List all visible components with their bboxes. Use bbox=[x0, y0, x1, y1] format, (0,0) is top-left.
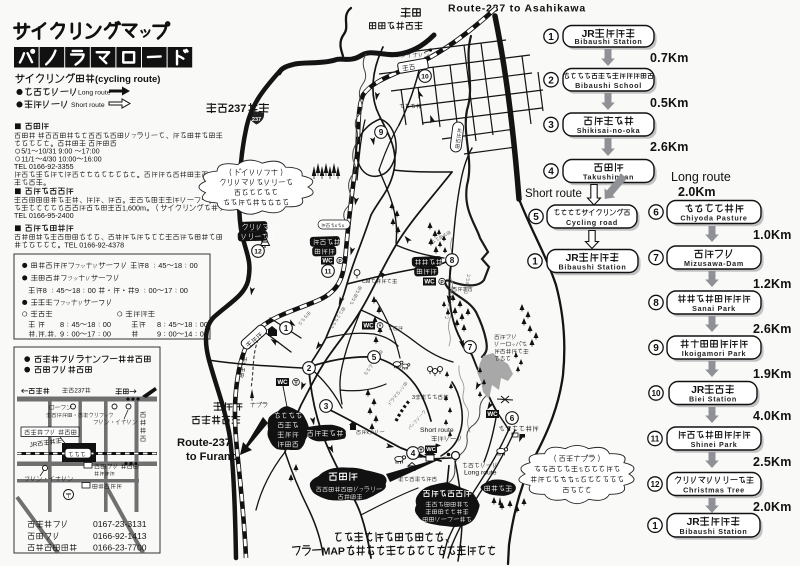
svg-text:1: 1 bbox=[532, 257, 538, 268]
svg-text:8: 8 bbox=[653, 298, 659, 309]
svg-text:Long route: Long route bbox=[464, 470, 497, 477]
svg-text:.: . bbox=[35, 330, 37, 339]
svg-text:5: 5 bbox=[533, 212, 539, 223]
svg-text:Short route: Short route bbox=[525, 188, 582, 200]
svg-text:WC: WC bbox=[487, 411, 498, 418]
svg-text:1: 1 bbox=[548, 32, 554, 43]
svg-text:45: 45 bbox=[56, 286, 64, 295]
svg-text:00: 00 bbox=[103, 330, 111, 339]
svg-text:7: 7 bbox=[653, 253, 659, 264]
svg-text:3: 3 bbox=[412, 395, 415, 401]
svg-text:Short route: Short route bbox=[420, 427, 454, 434]
svg-text:9: 9 bbox=[135, 286, 139, 295]
svg-text:9: 9 bbox=[379, 128, 384, 137]
svg-text:Bibaushi Station: Bibaushi Station bbox=[680, 527, 748, 536]
svg-text:0166-92-1413: 0166-92-1413 bbox=[93, 531, 147, 541]
svg-text:WC: WC bbox=[424, 279, 435, 286]
svg-text:1: 1 bbox=[652, 521, 658, 532]
svg-text:237: 237 bbox=[74, 388, 85, 395]
svg-text:00: 00 bbox=[72, 330, 80, 339]
svg-text:0.5Km: 0.5Km bbox=[650, 96, 689, 110]
svg-text:237: 237 bbox=[252, 117, 261, 123]
svg-text:18: 18 bbox=[87, 320, 95, 329]
svg-text:Shikisai-no-oka: Shikisai-no-oka bbox=[577, 126, 641, 135]
svg-text:11: 11 bbox=[651, 435, 660, 444]
svg-text:18: 18 bbox=[72, 286, 80, 295]
svg-text:4: 4 bbox=[411, 449, 416, 458]
svg-text:Bibaushi Station: Bibaushi Station bbox=[559, 263, 627, 272]
svg-text:2.6Km: 2.6Km bbox=[753, 322, 792, 336]
svg-text:Route-237 to Asahikawa: Route-237 to Asahikawa bbox=[448, 3, 586, 15]
svg-text:237: 237 bbox=[228, 103, 246, 115]
svg-text:TEL 0166-92-4378: TEL 0166-92-4378 bbox=[64, 240, 124, 249]
svg-text:00: 00 bbox=[88, 286, 96, 295]
svg-text:14: 14 bbox=[184, 330, 192, 339]
svg-text:Shinei Park: Shinei Park bbox=[691, 440, 738, 449]
svg-text:Long route: Long route bbox=[671, 170, 731, 184]
svg-text:WC: WC bbox=[277, 379, 288, 386]
svg-text:16:00: 16:00 bbox=[84, 154, 102, 163]
svg-text:0166-23-7700: 0166-23-7700 bbox=[93, 543, 147, 553]
svg-text:12: 12 bbox=[254, 248, 262, 255]
svg-text:6: 6 bbox=[653, 208, 659, 219]
svg-text:Mizusawa-Dam: Mizusawa-Dam bbox=[684, 259, 744, 268]
svg-text:Bibaushi Station: Bibaushi Station bbox=[575, 37, 643, 46]
svg-text:00: 00 bbox=[103, 320, 111, 329]
svg-text:CM: CM bbox=[362, 279, 371, 285]
svg-text:8: 8 bbox=[43, 286, 47, 295]
svg-text:TEL 0166-95-2400: TEL 0166-95-2400 bbox=[14, 211, 74, 220]
svg-text:8: 8 bbox=[157, 320, 161, 329]
svg-text:2.0Km: 2.0Km bbox=[678, 185, 716, 199]
svg-text:2.0Km: 2.0Km bbox=[753, 500, 792, 514]
svg-text:JR: JR bbox=[29, 441, 38, 449]
svg-text:9: 9 bbox=[60, 330, 64, 339]
svg-text:17: 17 bbox=[87, 330, 95, 339]
svg-text:45: 45 bbox=[72, 320, 80, 329]
svg-text:00: 00 bbox=[169, 330, 177, 339]
svg-text:12: 12 bbox=[650, 480, 660, 489]
svg-text:2: 2 bbox=[548, 75, 554, 86]
svg-text:Cycling road: Cycling road bbox=[566, 218, 618, 227]
svg-text:WC: WC bbox=[363, 323, 374, 330]
svg-text:00: 00 bbox=[149, 286, 157, 295]
svg-text:WC: WC bbox=[322, 258, 333, 265]
svg-text:MAP: MAP bbox=[322, 546, 345, 558]
svg-text:1.2Km: 1.2Km bbox=[753, 277, 792, 291]
svg-text:45: 45 bbox=[169, 320, 177, 329]
svg-text:8: 8 bbox=[145, 261, 149, 270]
svg-text:9: 9 bbox=[157, 330, 161, 339]
svg-text:9: 9 bbox=[653, 343, 659, 354]
svg-text:0.7Km: 0.7Km bbox=[650, 51, 689, 65]
svg-text:8: 8 bbox=[60, 320, 64, 329]
svg-text:10: 10 bbox=[651, 389, 661, 398]
svg-text:1.0Km: 1.0Km bbox=[753, 228, 792, 242]
svg-text:TEL 0166-92-3355: TEL 0166-92-3355 bbox=[14, 162, 74, 171]
svg-text:3: 3 bbox=[548, 120, 554, 131]
svg-text:WC: WC bbox=[426, 447, 437, 453]
svg-text:6: 6 bbox=[510, 414, 515, 423]
svg-text:18: 18 bbox=[184, 320, 192, 329]
svg-text:4: 4 bbox=[548, 167, 554, 178]
svg-text:8: 8 bbox=[450, 256, 455, 265]
svg-text:0167-23-3131: 0167-23-3131 bbox=[93, 519, 147, 529]
svg-text:3: 3 bbox=[324, 402, 329, 411]
svg-text:45: 45 bbox=[158, 261, 166, 270]
svg-text:2.6Km: 2.6Km bbox=[650, 140, 689, 154]
svg-text:00: 00 bbox=[190, 261, 198, 270]
svg-text:.: . bbox=[45, 330, 47, 339]
svg-text:00: 00 bbox=[180, 286, 188, 295]
svg-text:Chiyoda Pasture: Chiyoda Pasture bbox=[680, 214, 747, 223]
svg-text:Christmas Tree: Christmas Tree bbox=[683, 486, 745, 495]
svg-text:2.5Km: 2.5Km bbox=[753, 455, 792, 469]
svg-text:18: 18 bbox=[174, 261, 182, 270]
svg-text:Route-237: Route-237 bbox=[177, 437, 231, 449]
svg-text:5: 5 bbox=[372, 353, 377, 362]
svg-text:Short route: Short route bbox=[71, 102, 105, 109]
svg-text:Biei Station: Biei Station bbox=[689, 395, 737, 404]
svg-text:17: 17 bbox=[164, 286, 172, 295]
svg-text:10: 10 bbox=[421, 73, 429, 80]
svg-text:Takushinkan: Takushinkan bbox=[583, 173, 634, 182]
svg-text:Bibaushi School: Bibaushi School bbox=[575, 81, 642, 90]
svg-text:11: 11 bbox=[324, 268, 331, 275]
svg-text:1,600m: 1,600m bbox=[122, 203, 146, 212]
svg-text:(cycling route): (cycling route) bbox=[95, 74, 160, 85]
svg-text:2: 2 bbox=[307, 364, 312, 373]
svg-text:Sanai Park: Sanai Park bbox=[692, 304, 736, 313]
svg-text:1: 1 bbox=[284, 324, 289, 333]
svg-text:.: . bbox=[54, 330, 56, 339]
svg-text:Ikoigamori Park: Ikoigamori Park bbox=[682, 349, 746, 358]
svg-text:4.0Km: 4.0Km bbox=[753, 409, 792, 423]
svg-text:Long route: Long route bbox=[78, 90, 111, 97]
svg-text:x: x bbox=[366, 430, 369, 436]
svg-text:1.9Km: 1.9Km bbox=[753, 367, 792, 381]
svg-text:7: 7 bbox=[468, 343, 473, 352]
